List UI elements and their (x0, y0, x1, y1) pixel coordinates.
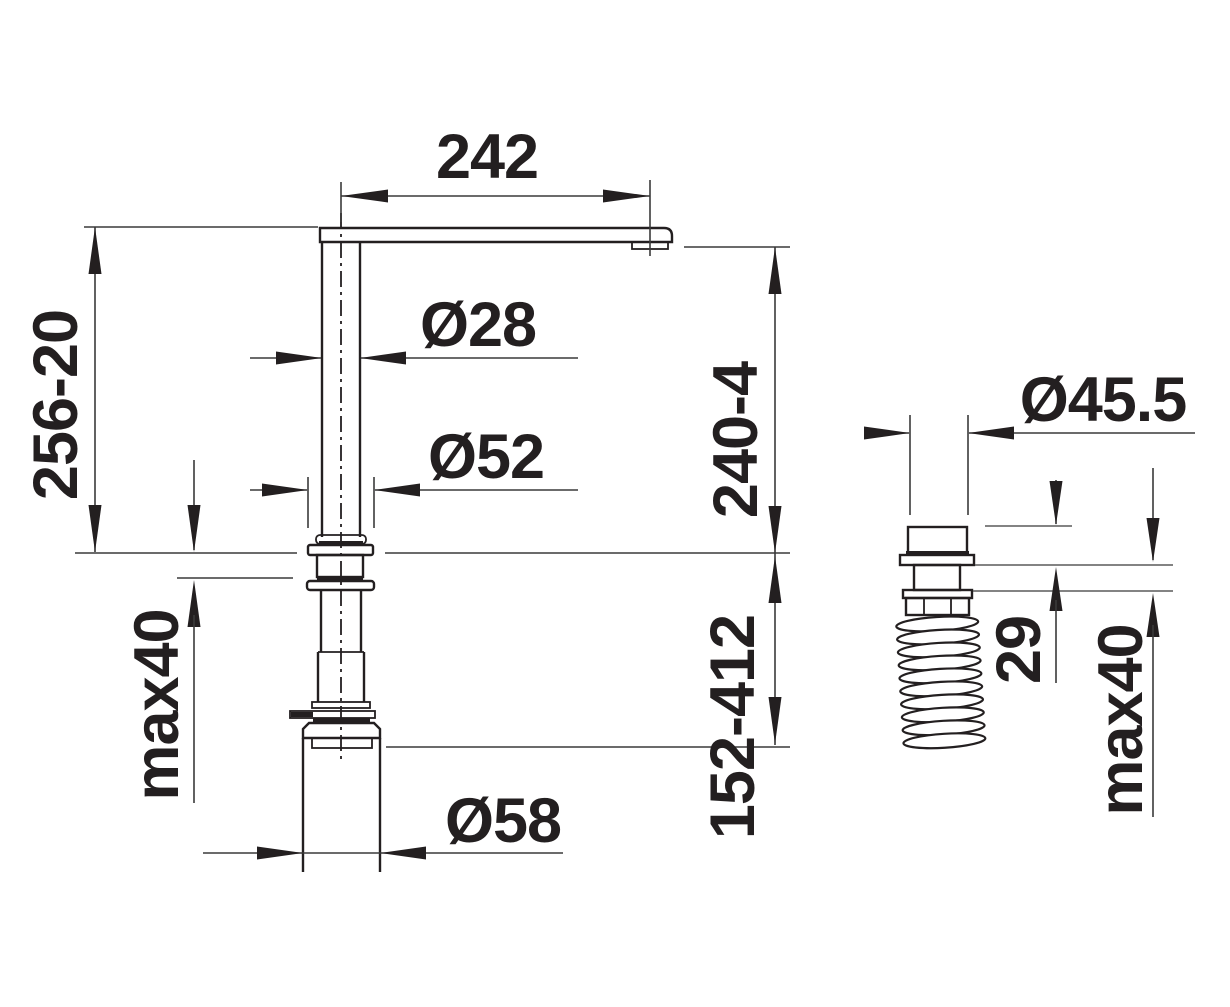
faucet-dimension-drawing: 242 256-20 Ø28 Ø52 240-4 (0, 0, 1230, 1007)
arrowhead-down (1147, 518, 1160, 562)
arrowhead-down (89, 505, 102, 552)
dim-riser-diameter: Ø28 (250, 290, 578, 365)
dim-152-412-label: 152-412 (698, 615, 768, 839)
arrowhead-left (968, 427, 1014, 440)
dim-29-label: 29 (984, 616, 1054, 684)
dim-counter-thickness-main: max40 (122, 460, 201, 803)
socket-inner-step (312, 738, 372, 748)
dim-escutcheon-diameter: Ø52 (250, 422, 578, 528)
fitting-neck (914, 565, 960, 590)
dim-242-label: 242 (436, 122, 538, 192)
arrowhead-down (769, 697, 782, 744)
base-body (317, 555, 363, 577)
dim-d45-5-label: Ø45.5 (1020, 365, 1187, 435)
arrowhead-left (360, 352, 406, 365)
arrowhead-up (769, 556, 782, 603)
arrowhead-left (341, 190, 388, 203)
fitting-hex-collar (906, 598, 969, 615)
dim-outlet-height: 240-4 (684, 247, 790, 553)
dim-d58-label: Ø58 (445, 786, 561, 856)
arrowhead-right (262, 484, 308, 497)
dim-fitting-diameter: Ø45.5 (864, 365, 1195, 515)
arrowhead-down (188, 505, 201, 552)
dim-d28-label: Ø28 (420, 290, 536, 360)
arrowhead-down (1050, 481, 1063, 525)
fitting-cap (908, 527, 967, 553)
dim-max40-detail-label: max40 (1086, 624, 1156, 815)
arrowhead-right (276, 352, 322, 365)
fitting-lower-flange (903, 590, 972, 598)
detail-view-hose-fitting (896, 527, 986, 750)
dim-256-20-label: 256-20 (21, 310, 91, 500)
technical-drawing-canvas: 242 256-20 Ø28 Ø52 240-4 (0, 0, 1230, 1007)
dim-spout-height: 256-20 (21, 227, 318, 552)
dim-240-4-label: 240-4 (701, 361, 771, 518)
spout-bar (320, 228, 672, 242)
arrowhead-up (769, 247, 782, 294)
arrowhead-left (380, 847, 426, 860)
corrugated-hose (896, 615, 986, 751)
dim-counter-thickness-detail: max40 (1086, 468, 1160, 817)
fitting-upper-flange (900, 555, 974, 565)
arrowhead-up (89, 227, 102, 274)
arrowhead-right (257, 847, 303, 860)
arrowhead-right (603, 190, 650, 203)
dim-socket-diameter: Ø58 (203, 786, 563, 860)
dim-d52-label: Ø52 (428, 422, 544, 492)
dim-below-counter: 152-412 (698, 553, 782, 839)
dim-spout-reach: 242 (341, 122, 650, 256)
arrowhead-right (864, 427, 910, 440)
dim-max40-main-label: max40 (122, 609, 192, 800)
stabilizer-tab (291, 712, 313, 717)
arrowhead-left (374, 484, 420, 497)
